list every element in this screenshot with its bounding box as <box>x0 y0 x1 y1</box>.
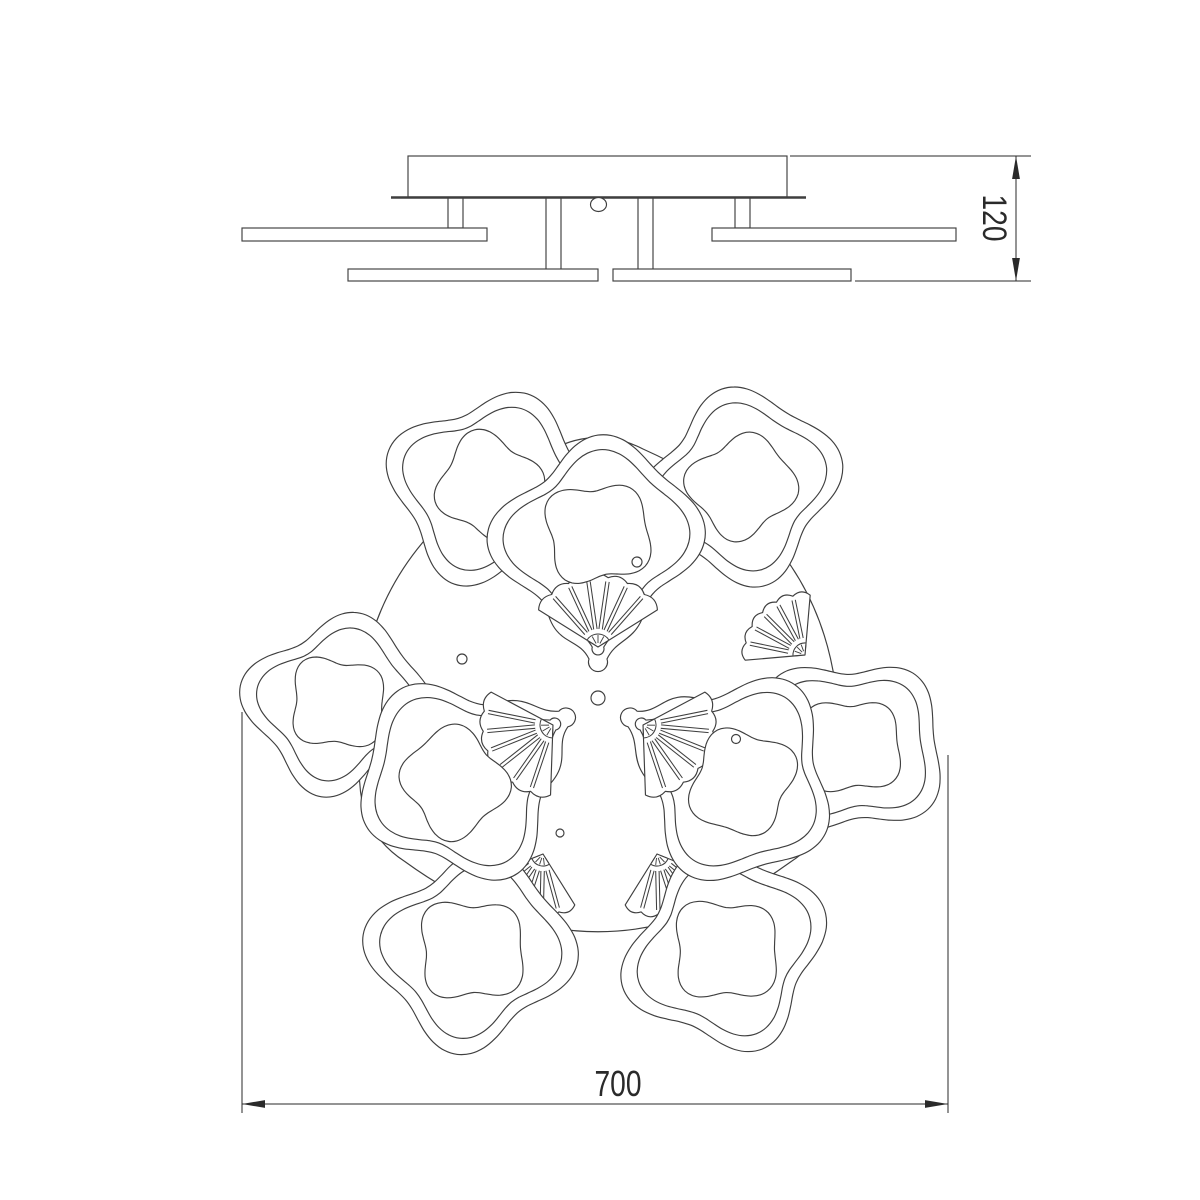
plate-island-outline <box>676 901 776 997</box>
center-knob <box>591 198 607 212</box>
lamp-arm-panel <box>712 228 956 241</box>
arrowhead-right-icon <box>925 1100 948 1108</box>
technical-drawing-page: 120700 <box>0 0 1200 1200</box>
lamp-arm-panel <box>348 269 598 281</box>
plan-view <box>240 387 940 1055</box>
lamp-arm-stem <box>448 197 463 228</box>
width-dimension-label: 700 <box>595 1063 642 1104</box>
chandelier-dimension-drawing: 120700 <box>0 0 1200 1200</box>
lamp-arm-stem <box>546 197 561 270</box>
plate-island-outline <box>293 657 384 747</box>
side-view <box>242 156 956 281</box>
mounting-hole <box>632 557 642 567</box>
ceiling-canopy <box>408 156 787 197</box>
mounting-hole <box>591 691 605 705</box>
arrowhead-up-icon <box>1012 156 1020 179</box>
inner-plate-island <box>545 485 651 583</box>
lamp-arm-stem <box>735 197 750 228</box>
mounting-hole <box>556 829 564 837</box>
lamp-arm-panel <box>613 269 851 281</box>
arrowhead-left-icon <box>242 1100 265 1108</box>
mounting-hole <box>732 735 741 744</box>
height-dimension: 120 <box>790 156 1031 281</box>
lamp-arm-stem <box>638 197 653 270</box>
lamp-arm-panel <box>242 228 487 241</box>
arrowhead-down-icon <box>1012 258 1020 281</box>
height-dimension-label: 120 <box>975 195 1013 242</box>
plate-island-outline <box>422 902 523 998</box>
mounting-hole <box>457 654 467 664</box>
